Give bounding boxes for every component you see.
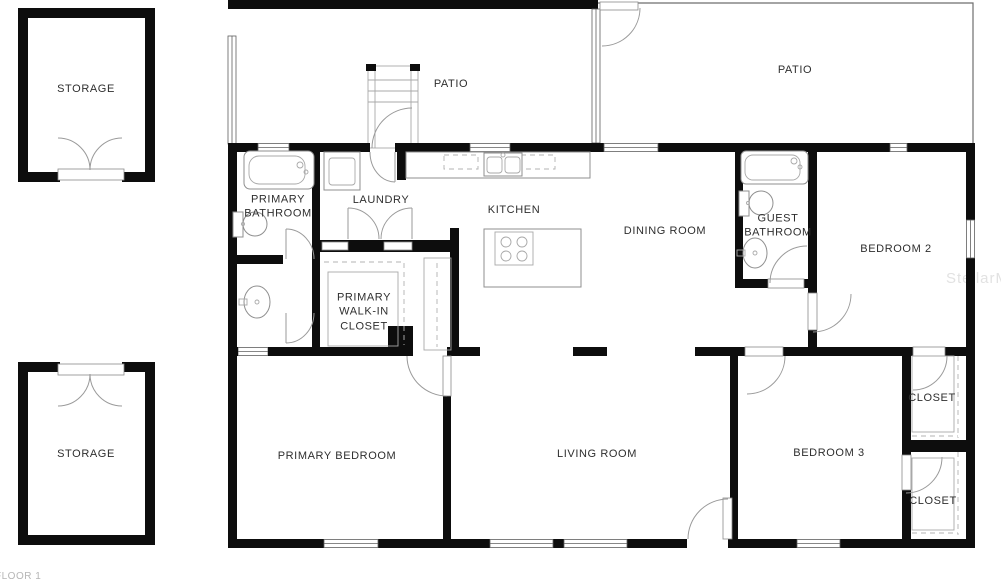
door-arc [58,374,90,406]
window [324,540,378,548]
window [228,36,236,144]
room-label-primary-bedroom: PRIMARY BEDROOM [278,449,397,463]
door-arc [58,138,90,170]
door-arc [286,313,314,343]
kitchen-sink [484,153,522,176]
door-arc [372,108,412,148]
room-label-storage-bottom: STORAGE [57,447,115,461]
room-label-primary-walk-in-closet: PRIMARY WALK-IN CLOSET [324,291,404,334]
closet-door-leaf [384,242,412,250]
door-arc [913,356,947,390]
door-arc [370,152,395,182]
room-label-primary-bathroom: PRIMARY BATHROOM [231,193,326,222]
room-label-storage-top: STORAGE [57,82,115,96]
window [967,220,975,258]
laundry-fixtures [324,152,360,190]
room-label-closet-bedroom-2: CLOSET [908,391,956,405]
door-arc [286,229,314,259]
door-leaf [768,279,804,288]
room-label-guest-bathroom: GUEST BATHROOM [737,212,819,241]
room-label-dining-room: DINING ROOM [624,224,706,238]
room-label-patio-left: PATIO [434,77,468,91]
window [890,144,907,152]
floor-plan-drawing: StellarMLS [0,0,1001,586]
door-arc [381,208,412,239]
sink [244,286,270,318]
door-arc [813,294,851,332]
room-label-patio-right: PATIO [778,63,812,77]
sink [743,238,767,268]
door-arc [770,246,807,283]
exterior-walls [228,143,975,548]
door-leaf [808,293,817,330]
door-leaf [745,347,783,356]
floor-plan: StellarMLS [0,0,1001,586]
door-leaf [443,356,451,396]
door-arc [348,208,379,239]
exterior-windows [238,144,975,548]
storage-bottom-door-sill [58,364,124,375]
floor-number-label: FLOOR 1 [0,571,41,582]
window [470,144,510,152]
window [564,540,627,548]
door-arc [90,374,122,406]
room-label-laundry: LAUNDRY [353,193,410,207]
window [238,348,268,356]
patio-door-leaf [600,2,638,10]
door-arc [906,457,942,493]
window [592,9,600,143]
kitchen-island [484,229,581,287]
closet-door-leaf [322,242,348,250]
entry-door-leaf [723,498,732,539]
kitchen-fixtures [406,152,590,287]
window [258,144,289,152]
door-arc [688,499,728,539]
door-arc [747,356,785,394]
window [604,144,658,152]
door-leaf [913,347,945,356]
doors [286,152,947,539]
room-label-bedroom-3: BEDROOM 3 [793,446,864,460]
window [797,540,840,548]
door-arc [90,138,122,170]
room-label-kitchen: KITCHEN [488,203,540,217]
room-label-living-room: LIVING ROOM [557,447,637,461]
room-label-closet-bedroom-3: CLOSET [909,494,957,508]
door-arc [407,356,447,396]
guest-bathroom-fixtures [737,151,808,268]
interior-walls [228,143,975,539]
patio-left-structure [228,0,600,148]
window [490,540,553,548]
door-leaf [902,455,911,490]
room-label-bedroom-2: BEDROOM 2 [860,242,931,256]
door-arc [602,8,640,46]
storage-top-door-sill [58,169,124,180]
